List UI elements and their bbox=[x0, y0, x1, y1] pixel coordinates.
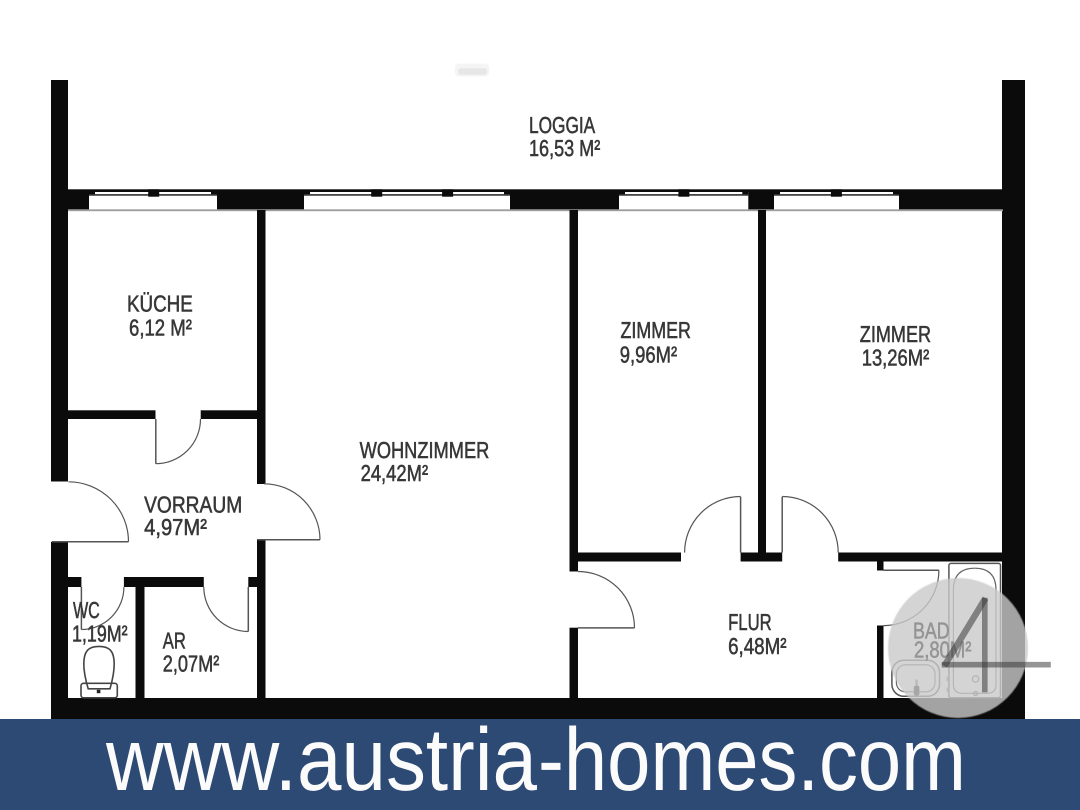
svg-text:LOGGIA: LOGGIA bbox=[529, 112, 596, 138]
svg-text:ZIMMER: ZIMMER bbox=[621, 317, 691, 343]
svg-text:4,97M²: 4,97M² bbox=[144, 514, 207, 540]
svg-text:ZIMMER: ZIMMER bbox=[860, 321, 931, 347]
svg-text:FLUR: FLUR bbox=[728, 609, 772, 635]
svg-text:KÜCHE: KÜCHE bbox=[127, 291, 193, 317]
svg-text:WC: WC bbox=[73, 597, 100, 623]
svg-text:www.austria: www.austria bbox=[105, 709, 537, 809]
svg-text:6,48M²: 6,48M² bbox=[728, 633, 787, 659]
svg-text:24,42M²: 24,42M² bbox=[361, 460, 429, 486]
svg-text:2,07M²: 2,07M² bbox=[163, 650, 220, 676]
svg-text:9,96M²: 9,96M² bbox=[620, 342, 678, 368]
svg-text:6,12 M²: 6,12 M² bbox=[129, 315, 192, 341]
svg-text:13,26M²: 13,26M² bbox=[862, 345, 930, 371]
svg-text:1,19M²: 1,19M² bbox=[72, 621, 128, 647]
svg-text:-homes.com: -homes.com bbox=[538, 709, 966, 809]
svg-text:WOHNZIMMER: WOHNZIMMER bbox=[360, 437, 490, 463]
svg-text:16,53 M²: 16,53 M² bbox=[529, 135, 600, 161]
